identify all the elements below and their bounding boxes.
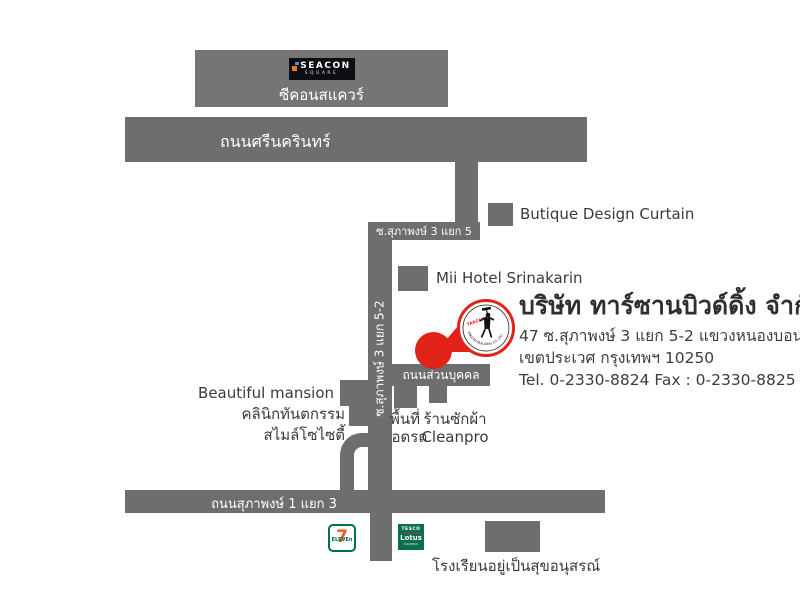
- tarzan-logo-badge: TARZAN TARZAN BUILDING CO.,LTD.: [457, 299, 515, 357]
- laundry-label-line2: Cleanpro: [420, 428, 490, 446]
- tesco-text: TESCO: [401, 528, 420, 533]
- dental-clinic-marker: [349, 404, 369, 426]
- seacon-brand-text: SEACON: [300, 62, 350, 71]
- dental-clinic-line2: สไมล์โซไซตี้: [195, 425, 345, 446]
- seven-eleven-logo: 7 ELEVEn: [328, 524, 356, 552]
- butique-design-curtain-marker: [488, 203, 513, 226]
- tarzan-logo-icon: TARZAN TARZAN BUILDING CO.,LTD.: [460, 302, 512, 354]
- company-contact: Tel. 0-2330-8824 Fax : 0-2330-8825: [519, 370, 794, 392]
- school-label: โรงเรียนอยู่เป็นสุขอนุสรณ์: [432, 554, 592, 578]
- seacon-square-building: SEACON SQUARE ซีคอนสแควร์: [195, 50, 448, 107]
- road-srinakarin-label: ถนนศรีนครินทร์: [220, 130, 331, 155]
- seacon-squares-icon: [292, 62, 299, 71]
- road-branch-curve: [340, 433, 392, 493]
- company-info-block: บริษัท ทาร์ซานบิวด์ดิ้ง จำกัด 47 ซ.สุภาพ…: [519, 290, 794, 391]
- dental-clinic-line1: คลินิกทันตกรรม: [195, 404, 345, 425]
- company-name: บริษัท ทาร์ซานบิวด์ดิ้ง จำกัด: [519, 290, 794, 321]
- seven-eleven-text: ELEVEn: [330, 537, 354, 543]
- butique-design-curtain-label: Butique Design Curtain: [520, 205, 694, 223]
- seacon-square-logo: SEACON SQUARE: [289, 58, 355, 80]
- road-soi-5-jog: ซ.สุภาพงษ์ 3 แยก 5: [368, 222, 480, 240]
- tesco-express-text: Express: [404, 543, 418, 547]
- mii-hotel-marker: [398, 266, 428, 291]
- road-soi-5-label: ซ.สุภาพงษ์ 3 แยก 5: [376, 222, 472, 240]
- road-suphaphong-1-label: ถนนสุภาพงษ์ 1 แยก 3: [174, 493, 374, 514]
- mii-hotel-label: Mii Hotel Srinakarin: [436, 269, 583, 287]
- dental-clinic-label: คลินิกทันตกรรม สไมล์โซไซตี้: [195, 404, 345, 446]
- beautiful-mansion-marker: [340, 380, 368, 406]
- seacon-brand-subtext: SQUARE: [305, 72, 339, 77]
- laundry-label: ร้านซักผ้า Cleanpro: [420, 410, 490, 446]
- school-marker: [485, 521, 540, 552]
- company-location-dot: [415, 332, 452, 369]
- tesco-lotus-logo: TESCO Lotus Express: [398, 524, 424, 550]
- location-map: SEACON SQUARE ซีคอนสแควร์ ถนนศรีนครินทร์…: [0, 0, 800, 600]
- company-address-line2: เขตประเวศ กรุงเทพฯ 10250: [519, 348, 794, 370]
- seacon-thai-label: ซีคอนสแควร์: [279, 83, 364, 107]
- tesco-lotus-text: Lotus: [400, 535, 422, 542]
- beautiful-mansion-label: Beautiful mansion: [184, 384, 334, 402]
- road-soi-lower: [370, 513, 392, 561]
- parking-area-marker: [394, 385, 417, 408]
- road-private-label: ถนนส่วนบุคคล: [403, 366, 480, 385]
- laundry-marker: [429, 385, 447, 403]
- company-address-line1: 47 ซ.สุภาพงษ์ 3 แยก 5-2 แขวงหนองบอน: [519, 326, 794, 348]
- road-srinakarin: [125, 117, 587, 162]
- laundry-label-line1: ร้านซักผ้า: [420, 410, 490, 428]
